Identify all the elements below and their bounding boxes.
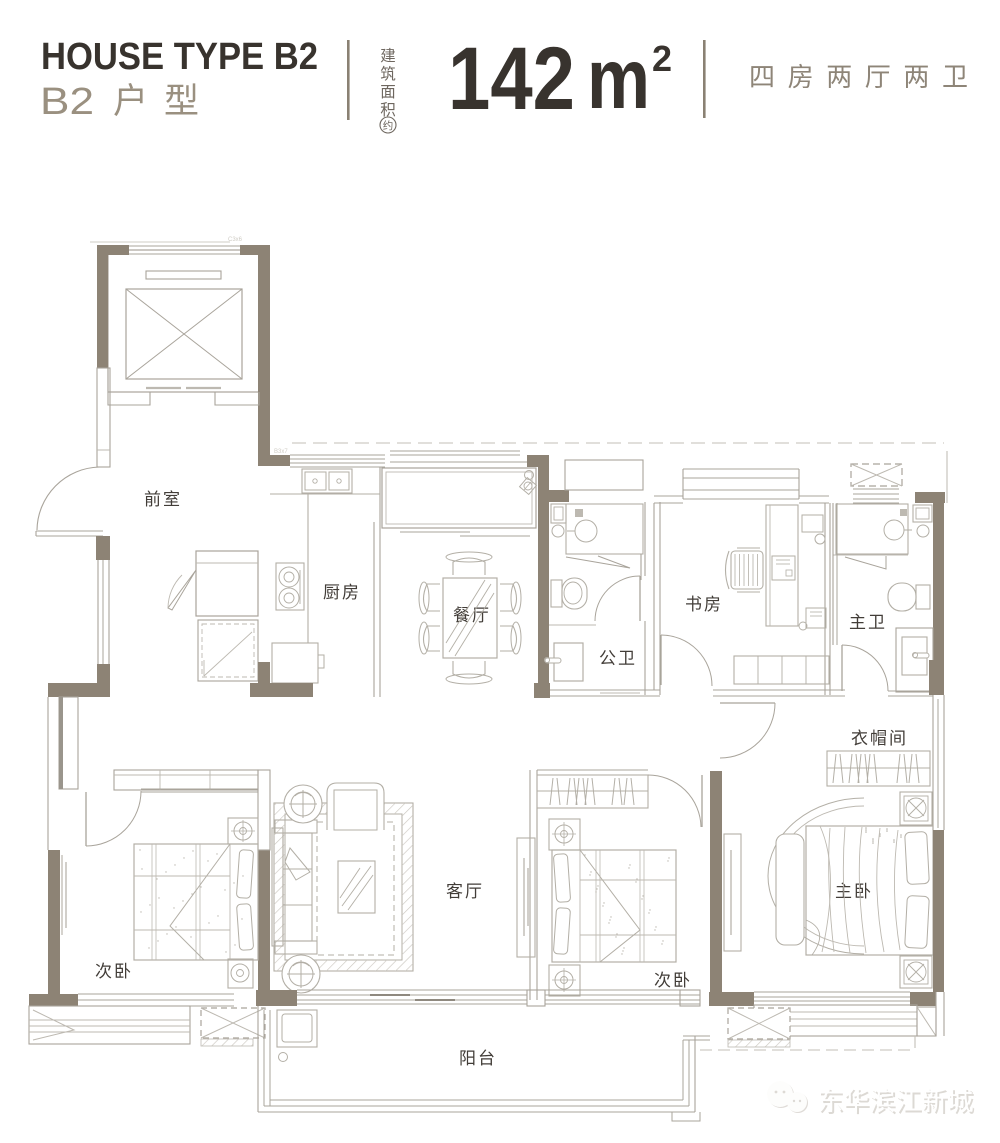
svg-text:约: 约 — [383, 119, 394, 132]
svg-text:主卧: 主卧 — [835, 882, 873, 901]
svg-text:前室: 前室 — [144, 490, 182, 509]
svg-text:四房两厅两卫: 四房两厅两卫 — [749, 62, 981, 92]
svg-text:m: m — [587, 32, 650, 127]
svg-text:厨房: 厨房 — [323, 583, 361, 602]
svg-text:户型: 户型 — [113, 82, 215, 121]
svg-text:次卧: 次卧 — [95, 962, 133, 981]
svg-text:衣帽间: 衣帽间 — [851, 729, 908, 748]
svg-text:C3x6: C3x6 — [228, 237, 243, 243]
svg-text:2: 2 — [652, 38, 672, 79]
svg-text:公卫: 公卫 — [599, 649, 637, 668]
svg-text:主卫: 主卫 — [849, 613, 887, 632]
svg-text:B3x7: B3x7 — [274, 449, 288, 455]
svg-text:阳台: 阳台 — [459, 1049, 497, 1068]
svg-text:客厅: 客厅 — [446, 882, 484, 901]
svg-text:142: 142 — [448, 28, 575, 128]
svg-text:书房: 书房 — [685, 595, 723, 614]
svg-text:筑: 筑 — [380, 65, 396, 83]
svg-text:面: 面 — [380, 84, 396, 101]
svg-text:次卧: 次卧 — [654, 971, 692, 990]
svg-text:B2: B2 — [40, 81, 94, 123]
svg-text:东华滨江新城: 东华滨江新城 — [817, 1086, 973, 1116]
svg-text:建: 建 — [380, 47, 396, 65]
svg-text:积: 积 — [380, 101, 396, 119]
svg-text:HOUSE TYPE B2: HOUSE TYPE B2 — [41, 36, 318, 78]
